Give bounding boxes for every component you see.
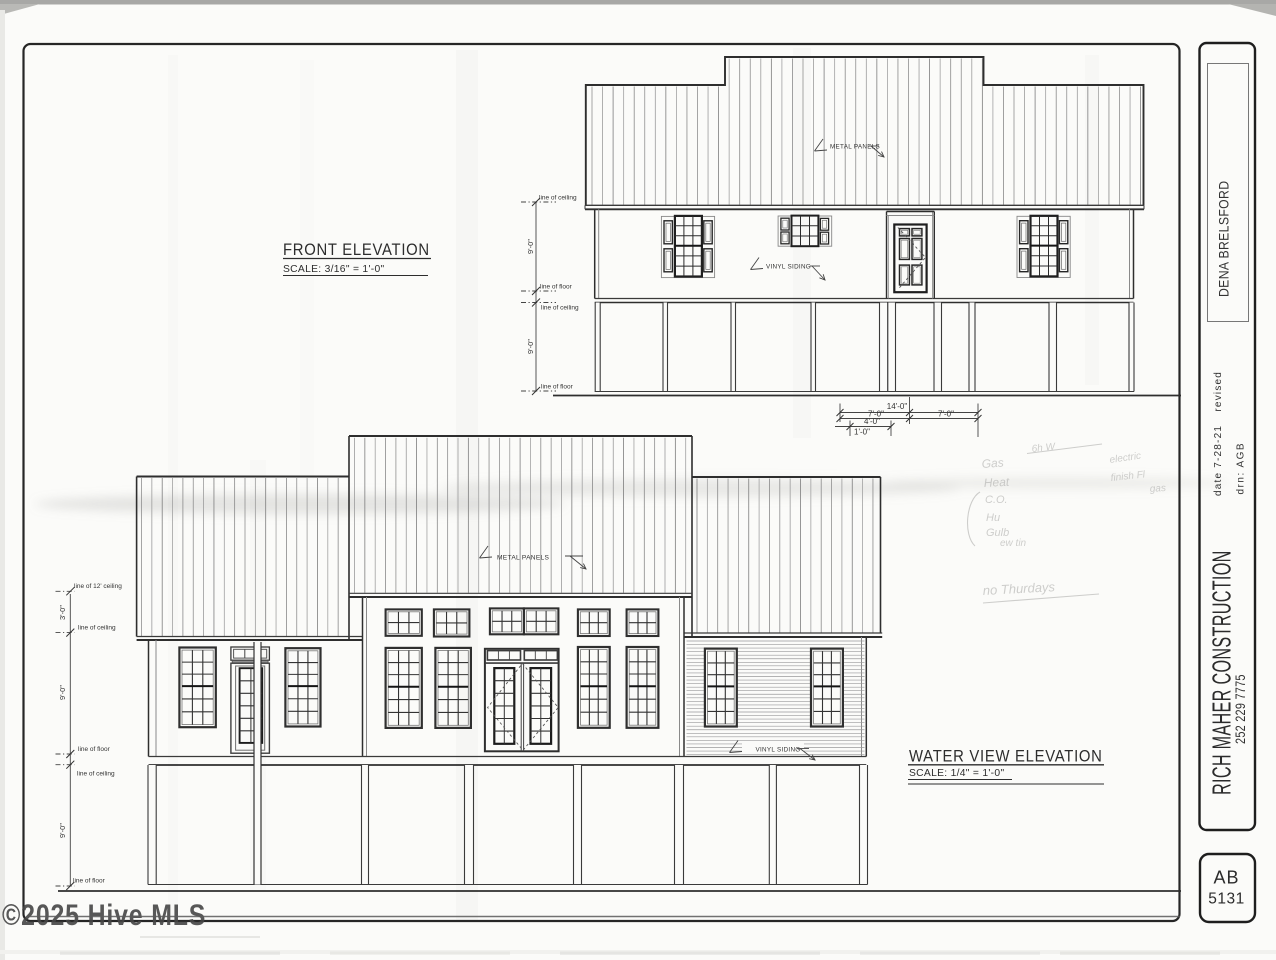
svg-text:Gas: Gas <box>981 455 1004 471</box>
svg-text:SCALE: 3/16" = 1'-0": SCALE: 3/16" = 1'-0" <box>283 264 384 275</box>
svg-text:Hu: Hu <box>986 512 1000 524</box>
svg-text:date 7-28-21: date 7-28-21 <box>1213 425 1224 496</box>
svg-text:5131: 5131 <box>1208 891 1244 908</box>
svg-text:SCALE: 1/4" = 1'-0": SCALE: 1/4" = 1'-0" <box>909 768 1004 779</box>
svg-text:VINYL SIDING: VINYL SIDING <box>766 264 811 271</box>
svg-text:line of 12' ceiling: line of 12' ceiling <box>74 583 122 590</box>
svg-text:RICH MAHER CONSTRUCTION: RICH MAHER CONSTRUCTION <box>1208 550 1237 795</box>
svg-text:9'-0": 9'-0" <box>526 339 535 354</box>
svg-text:FRONT ELEVATION: FRONT ELEVATION <box>283 241 430 259</box>
svg-text:line of ceiling: line of ceiling <box>539 195 577 202</box>
svg-text:9'-0": 9'-0" <box>58 685 67 700</box>
svg-text:VINYL SIDING: VINYL SIDING <box>756 747 801 754</box>
svg-text:gas: gas <box>1149 483 1166 495</box>
svg-text:9'-0": 9'-0" <box>58 823 67 838</box>
svg-text:3'-0": 3'-0" <box>58 605 67 620</box>
svg-text:7'-0": 7'-0" <box>938 410 954 419</box>
svg-text:line of ceiling: line of ceiling <box>77 771 115 778</box>
svg-text:DENA BRELSFORD: DENA BRELSFORD <box>1216 181 1232 297</box>
svg-text:revised: revised <box>1213 371 1224 412</box>
svg-text:line of floor: line of floor <box>541 384 574 391</box>
svg-text:line of ceiling: line of ceiling <box>541 305 579 312</box>
svg-text:drn: AGB: drn: AGB <box>1236 442 1247 495</box>
svg-text:METAL PANELS: METAL PANELS <box>497 555 550 562</box>
svg-text:14'-0": 14'-0" <box>887 402 908 411</box>
svg-text:line of floor: line of floor <box>540 284 573 291</box>
svg-text:4'-0": 4'-0" <box>864 417 880 426</box>
svg-text:Heat: Heat <box>983 475 1010 490</box>
svg-text:C.O.: C.O. <box>985 494 1008 506</box>
svg-text:line of floor: line of floor <box>78 746 111 753</box>
svg-text:line of ceiling: line of ceiling <box>78 625 116 632</box>
svg-text:252 229 7775: 252 229 7775 <box>1233 674 1248 744</box>
svg-text:©2025 Hive MLS: ©2025 Hive MLS <box>2 898 206 932</box>
svg-text:line of floor: line of floor <box>73 878 106 885</box>
svg-text:1'-0": 1'-0" <box>854 428 870 437</box>
svg-text:WATER VIEW ELEVATION: WATER VIEW ELEVATION <box>909 748 1103 766</box>
svg-text:9'-0": 9'-0" <box>526 239 535 254</box>
svg-text:AB: AB <box>1213 868 1239 888</box>
svg-text:ew tin: ew tin <box>1000 538 1027 549</box>
